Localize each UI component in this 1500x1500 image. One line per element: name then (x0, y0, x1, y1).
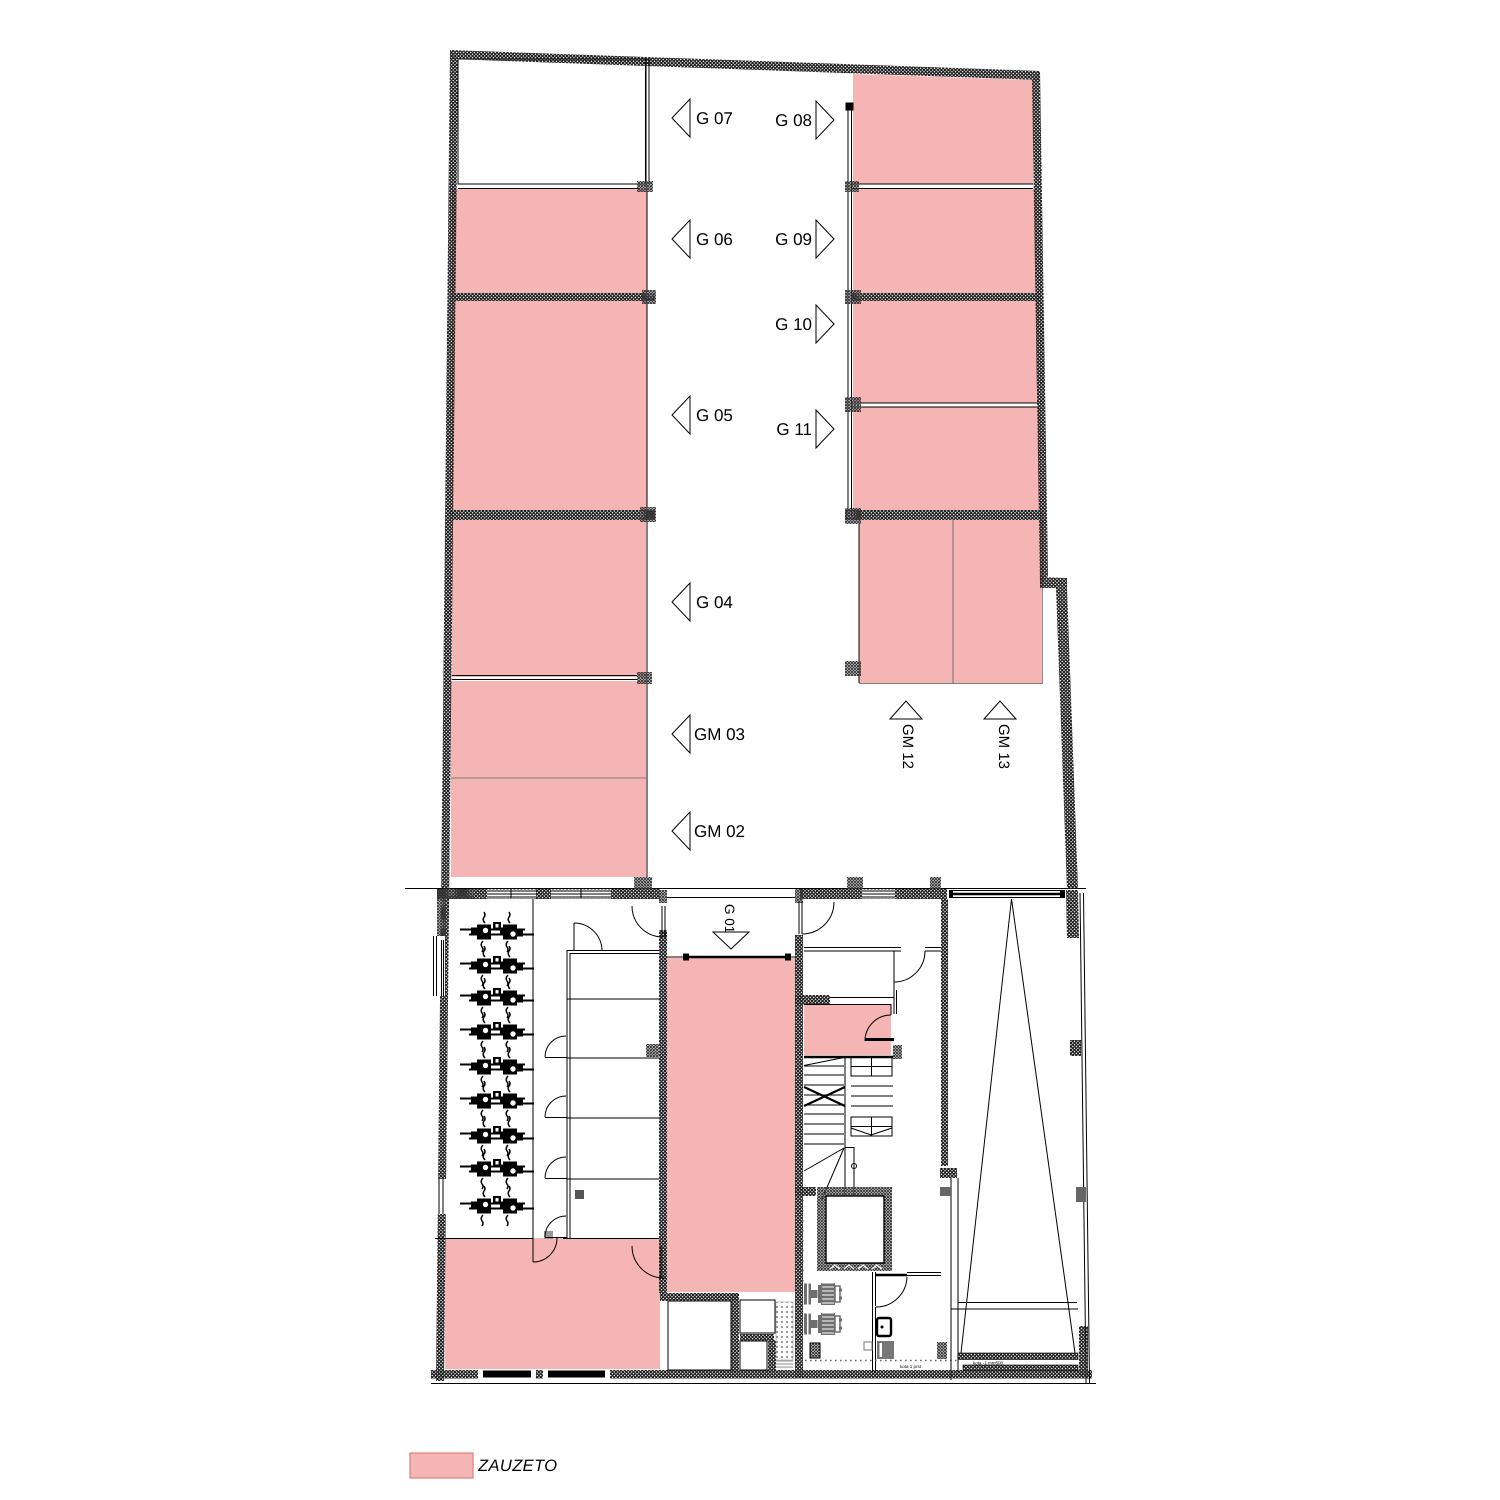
svg-text:G 11: G 11 (776, 420, 812, 439)
svg-text:kota 1 prst: kota 1 prst (900, 1364, 922, 1369)
svg-text:GM 02: GM 02 (694, 822, 745, 841)
svg-text:G 09: G 09 (775, 230, 812, 249)
svg-text:G 04: G 04 (696, 593, 733, 612)
svg-text:G 05: G 05 (696, 406, 733, 425)
svg-text:G 06: G 06 (696, 230, 733, 249)
svg-text:G 10: G 10 (775, 315, 812, 334)
svg-text:GM 03: GM 03 (694, 725, 745, 744)
svg-text:G 08: G 08 (775, 111, 812, 130)
svg-text:GM 13: GM 13 (995, 724, 1012, 769)
svg-text:G 07: G 07 (696, 109, 733, 128)
svg-text:ZAUZETO: ZAUZETO (477, 1457, 558, 1475)
svg-text:G 01: G 01 (722, 904, 737, 933)
svg-text:kota -1 mm500: kota -1 mm500 (973, 1361, 1004, 1366)
svg-text:GM 12: GM 12 (899, 724, 916, 769)
